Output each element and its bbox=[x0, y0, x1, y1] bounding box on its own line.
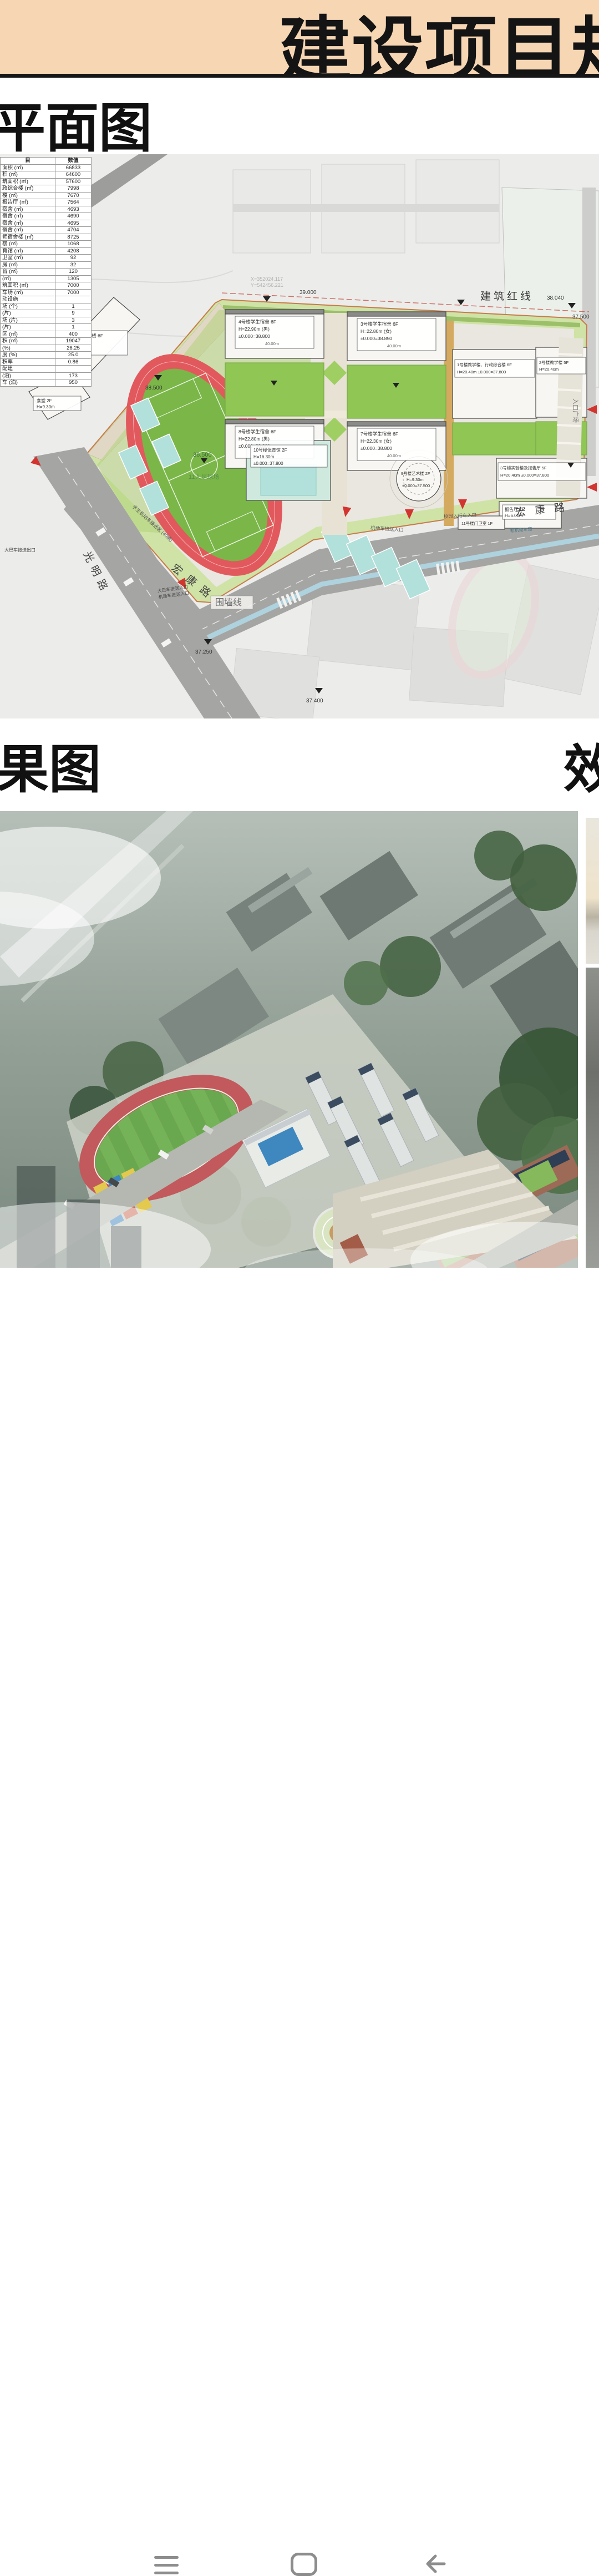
col-item-header: 目 bbox=[1, 158, 55, 165]
svg-text:37.250: 37.250 bbox=[195, 649, 212, 655]
svg-text:食堂 2F: 食堂 2F bbox=[37, 398, 52, 403]
svg-text:37.500: 37.500 bbox=[572, 314, 590, 320]
svg-text:±0.000=38.850: ±0.000=38.850 bbox=[361, 336, 392, 341]
table-row: 动设施 bbox=[1, 296, 92, 303]
table-cell-label: 度 (%) bbox=[1, 352, 55, 359]
table-cell-value: 1 bbox=[55, 324, 92, 331]
field-elevation: 36.500 bbox=[193, 452, 212, 458]
thumbnail-render-2[interactable] bbox=[586, 818, 599, 964]
svg-text:1号楼教学楼、行政综合楼 6F: 1号楼教学楼、行政综合楼 6F bbox=[457, 362, 512, 367]
svg-text:38.500: 38.500 bbox=[145, 385, 163, 391]
table-cell-value: 7564 bbox=[55, 199, 92, 206]
svg-text:7号楼学生宿舍 6F: 7号楼学生宿舍 6F bbox=[361, 431, 398, 437]
table-cell-value bbox=[55, 366, 92, 373]
plan-coord-y: Y=542456.221 bbox=[251, 282, 283, 288]
table-row: 积率0.86 bbox=[1, 358, 92, 366]
table-cell-label: 区 (㎡) bbox=[1, 331, 55, 338]
table-cell-value: 57600 bbox=[55, 178, 92, 185]
table-row: 房 (㎡)32 bbox=[1, 261, 92, 269]
table-row: 卫室 (㎡)92 bbox=[1, 255, 92, 262]
table-header-row: 目 数值 bbox=[1, 158, 92, 165]
table-cell-value: 120 bbox=[55, 269, 92, 276]
svg-text:±0.000=38.800: ±0.000=38.800 bbox=[361, 446, 392, 451]
svg-text:H=22.80m (女): H=22.80m (女) bbox=[361, 328, 392, 334]
table-cell-label: 宿舍 (㎡) bbox=[1, 227, 55, 234]
table-cell-value: 4704 bbox=[55, 227, 92, 234]
table-cell-value: 1068 bbox=[55, 241, 92, 248]
table-cell-label: 报告厅 (㎡) bbox=[1, 199, 55, 206]
site-plan-image[interactable]: X=352024.117 Y=542456.221 bbox=[0, 154, 599, 718]
table-row: 积 (㎡)64600 bbox=[1, 171, 92, 179]
table-row: 场 (片)3 bbox=[1, 317, 92, 324]
table-row: (泊)173 bbox=[1, 372, 92, 379]
table-row: (片)9 bbox=[1, 310, 92, 317]
table-row: 宿舍 (㎡)4704 bbox=[1, 227, 92, 234]
table-row: 宿舍 (㎡)4695 bbox=[1, 220, 92, 227]
table-cell-label: 育馆 (㎡) bbox=[1, 247, 55, 255]
table-row: 筑面积 (㎡)57600 bbox=[1, 178, 92, 185]
table-row: 车 (泊)950 bbox=[1, 379, 92, 387]
svg-text:3号楼学生宿舍 6F: 3号楼学生宿舍 6F bbox=[361, 321, 398, 327]
table-cell-label: (㎡) bbox=[1, 275, 55, 282]
plan-table-body: 面积 (㎡)66833积 (㎡)64600筑面积 (㎡)57600政综合楼 (㎡… bbox=[1, 164, 92, 386]
svg-text:39.000: 39.000 bbox=[299, 290, 317, 296]
back-icon[interactable] bbox=[421, 2552, 448, 2576]
table-cell-value: 64600 bbox=[55, 171, 92, 179]
table-cell-value: 950 bbox=[55, 379, 92, 387]
table-row: 区 (㎡)400 bbox=[1, 331, 92, 338]
table-cell-label: (片) bbox=[1, 310, 55, 317]
render-section-title-left: 果图 bbox=[0, 743, 101, 796]
table-cell-label: 场 (片) bbox=[1, 317, 55, 324]
table-cell-value: 3 bbox=[55, 317, 92, 324]
table-row: 楼 (㎡)1068 bbox=[1, 241, 92, 248]
svg-text:±0.000=37.500: ±0.000=37.500 bbox=[402, 483, 430, 488]
table-cell-label: 车场 (㎡) bbox=[1, 289, 55, 296]
table-cell-value: 19047 bbox=[55, 338, 92, 345]
red-line-label: 建筑红线 bbox=[480, 290, 534, 302]
table-row: (%)26.25 bbox=[1, 345, 92, 352]
soccer-field-label: 11人足球场 bbox=[189, 473, 219, 480]
table-cell-label: (%) bbox=[1, 345, 55, 352]
aerial-svg bbox=[0, 811, 578, 1268]
table-row: 政综合楼 (㎡)7998 bbox=[1, 185, 92, 193]
table-cell-value: 4695 bbox=[55, 220, 92, 227]
table-cell-label: 面积 (㎡) bbox=[1, 164, 55, 171]
table-cell-label: 卫室 (㎡) bbox=[1, 255, 55, 262]
table-cell-label: 师宿舍楼 (㎡) bbox=[1, 234, 55, 241]
svg-text:40.00m: 40.00m bbox=[387, 453, 401, 458]
svg-text:40.00m: 40.00m bbox=[387, 343, 401, 348]
svg-text:40.00m: 40.00m bbox=[265, 341, 279, 346]
table-cell-value: 32 bbox=[55, 261, 92, 269]
table-cell-label: 楼 (㎡) bbox=[1, 241, 55, 248]
table-cell-label: 场 (个) bbox=[1, 303, 55, 310]
android-nav-bar bbox=[0, 1268, 599, 1332]
svg-text:±0.000=38.800: ±0.000=38.800 bbox=[238, 333, 270, 339]
svg-text:H=20.40m ±0.000=37.800: H=20.40m ±0.000=37.800 bbox=[500, 473, 549, 478]
table-row: 筑面积 (㎡)7000 bbox=[1, 282, 92, 290]
plan-section-title: 平面图 bbox=[0, 102, 152, 155]
table-cell-label: (片) bbox=[1, 324, 55, 331]
table-row: 宿舍 (㎡)4693 bbox=[1, 206, 92, 213]
svg-text:H=22.80m (男): H=22.80m (男) bbox=[238, 436, 270, 442]
table-cell-label: 政综合楼 (㎡) bbox=[1, 185, 55, 193]
aerial-render-image[interactable] bbox=[0, 811, 578, 1268]
table-cell-label: 房 (㎡) bbox=[1, 261, 55, 269]
svg-text:H=20.40m: H=20.40m bbox=[539, 367, 559, 372]
plan-coord-x: X=352024.117 bbox=[251, 276, 283, 282]
table-cell-value: 25.0 bbox=[55, 352, 92, 359]
table-row: 面积 (㎡)66833 bbox=[1, 164, 92, 171]
table-cell-value: 0.86 bbox=[55, 358, 92, 366]
table-row: 积 (㎡)19047 bbox=[1, 338, 92, 345]
svg-text:±0.000=37.800: ±0.000=37.800 bbox=[253, 461, 283, 466]
table-cell-value: 1305 bbox=[55, 275, 92, 282]
svg-text:H=22.30m (女): H=22.30m (女) bbox=[361, 438, 392, 444]
svg-text:8号楼学生宿舍 6F: 8号楼学生宿舍 6F bbox=[238, 429, 276, 434]
table-cell-value: 8725 bbox=[55, 234, 92, 241]
courtyard-3 bbox=[453, 423, 537, 455]
table-cell-value: 7998 bbox=[55, 185, 92, 193]
table-cell-value: 173 bbox=[55, 372, 92, 379]
table-cell-label: 积率 bbox=[1, 358, 55, 366]
render-section-title-right: 效 bbox=[564, 743, 599, 796]
table-row: 楼 (㎡)7670 bbox=[1, 192, 92, 199]
svg-text:H=22.90m (男): H=22.90m (男) bbox=[238, 326, 270, 332]
plan-metrics-table: 目 数值 面积 (㎡)66833积 (㎡)64600筑面积 (㎡)57600政综… bbox=[0, 157, 92, 387]
svg-text:11号楼门卫室 1F: 11号楼门卫室 1F bbox=[461, 520, 493, 526]
table-cell-value: 4208 bbox=[55, 247, 92, 255]
banner-divider bbox=[0, 74, 599, 78]
table-cell-label: 车 (泊) bbox=[1, 379, 55, 387]
bus-exit-label: 大巴车接送出口 bbox=[4, 547, 35, 553]
home-icon[interactable] bbox=[291, 2553, 317, 2576]
col-value-header: 数值 bbox=[55, 158, 92, 165]
table-row: 报告厅 (㎡)7564 bbox=[1, 199, 92, 206]
table-cell-label: 积 (㎡) bbox=[1, 338, 55, 345]
table-cell-label: 台 (㎡) bbox=[1, 269, 55, 276]
svg-text:H=9.30m: H=9.30m bbox=[37, 404, 55, 409]
table-cell-label: 宿舍 (㎡) bbox=[1, 213, 55, 220]
wall-line-label: 围墙线 bbox=[215, 598, 242, 608]
table-cell-value: 9 bbox=[55, 310, 92, 317]
table-cell-value: 7670 bbox=[55, 192, 92, 199]
table-cell-value: 92 bbox=[55, 255, 92, 262]
svg-text:38.040: 38.040 bbox=[547, 295, 564, 301]
table-cell-label: 宿舍 (㎡) bbox=[1, 220, 55, 227]
table-row: (片)1 bbox=[1, 324, 92, 331]
svg-text:H=20.40m ±0.000=37.800: H=20.40m ±0.000=37.800 bbox=[457, 370, 506, 374]
table-cell-label: 楼 (㎡) bbox=[1, 192, 55, 199]
table-cell-value bbox=[55, 296, 92, 303]
table-row: 师宿舍楼 (㎡)8725 bbox=[1, 234, 92, 241]
menu-icon[interactable] bbox=[154, 2556, 179, 2574]
table-cell-label: (泊) bbox=[1, 372, 55, 379]
table-cell-label: 筑面积 (㎡) bbox=[1, 178, 55, 185]
table-cell-value: 400 bbox=[55, 331, 92, 338]
table-cell-value: 26.25 bbox=[55, 345, 92, 352]
table-row: 配建 bbox=[1, 366, 92, 373]
table-cell-value: 66833 bbox=[55, 164, 92, 171]
banner-title: 建设项目规 bbox=[278, 0, 599, 74]
table-row: 场 (个)1 bbox=[1, 303, 92, 310]
table-cell-value: 7000 bbox=[55, 282, 92, 290]
thumbnail-render-3[interactable] bbox=[586, 968, 599, 1268]
svg-text:3号楼实验楼及报告厅 5F: 3号楼实验楼及报告厅 5F bbox=[500, 465, 547, 470]
table-row: 台 (㎡)120 bbox=[1, 269, 92, 276]
entrance-plaza-label: 入口广场 bbox=[572, 398, 580, 423]
svg-text:H=16.30m: H=16.30m bbox=[253, 454, 274, 459]
table-row: 度 (%)25.0 bbox=[1, 352, 92, 359]
svg-text:37.400: 37.400 bbox=[306, 698, 323, 704]
title-banner: 建设项目规 bbox=[0, 0, 599, 74]
svg-text:H=9.30m: H=9.30m bbox=[407, 477, 424, 482]
table-cell-label: 配建 bbox=[1, 366, 55, 373]
table-cell-value: 7000 bbox=[55, 289, 92, 296]
table-row: 育馆 (㎡)4208 bbox=[1, 247, 92, 255]
table-row: (㎡)1305 bbox=[1, 275, 92, 282]
svg-text:4号楼学生宿舍 6F: 4号楼学生宿舍 6F bbox=[238, 319, 276, 325]
table-row: 车场 (㎡)7000 bbox=[1, 289, 92, 296]
table-cell-label: 动设施 bbox=[1, 296, 55, 303]
table-cell-label: 宿舍 (㎡) bbox=[1, 206, 55, 213]
screenshot-root: { "banner": { "title": "建设项目规", "bg_colo… bbox=[0, 0, 599, 1332]
svg-text:2号楼教学楼 5F: 2号楼教学楼 5F bbox=[539, 360, 569, 365]
svg-text:9号楼艺术楼 2F: 9号楼艺术楼 2F bbox=[401, 470, 430, 476]
table-cell-value: 4693 bbox=[55, 206, 92, 213]
table-cell-label: 积 (㎡) bbox=[1, 171, 55, 179]
courtyard-1 bbox=[225, 363, 324, 416]
table-cell-label: 筑面积 (㎡) bbox=[1, 282, 55, 290]
courtyard-2 bbox=[347, 365, 446, 418]
table-cell-value: 4690 bbox=[55, 213, 92, 220]
svg-text:10号楼体育馆 2F: 10号楼体育馆 2F bbox=[253, 447, 287, 453]
table-cell-value: 1 bbox=[55, 303, 92, 310]
table-row: 宿舍 (㎡)4690 bbox=[1, 213, 92, 220]
